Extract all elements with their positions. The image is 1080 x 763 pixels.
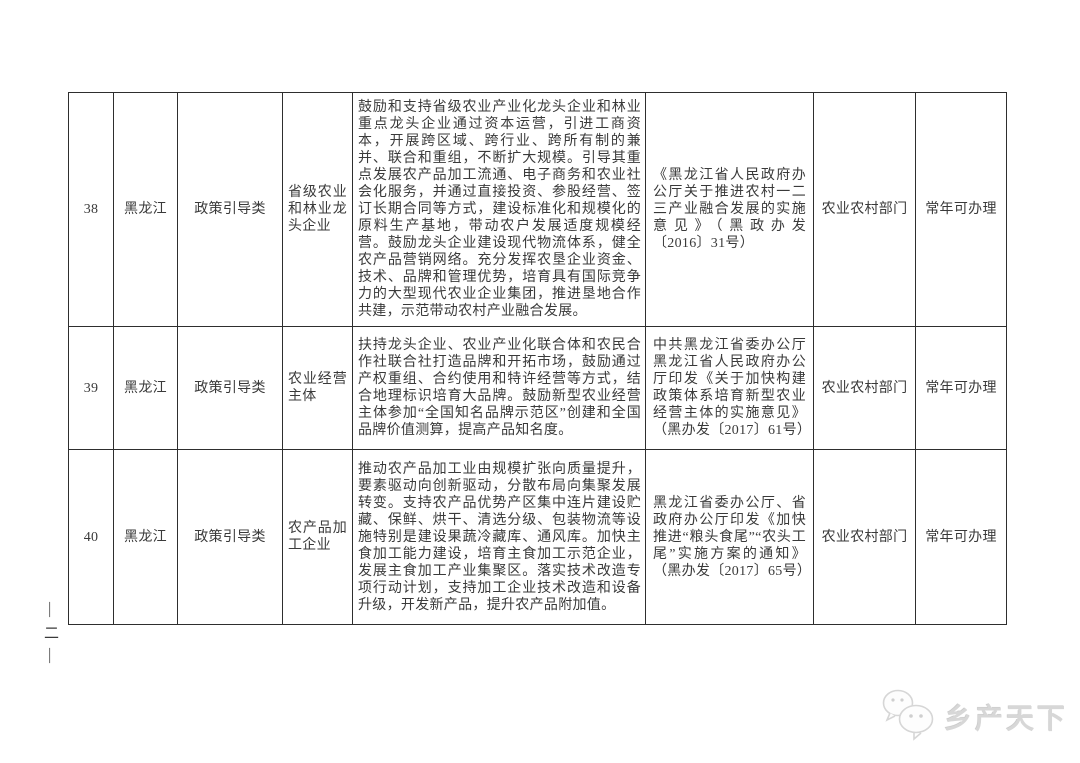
cell-category: 政策引导类: [178, 450, 283, 625]
cell-description: 扶持龙头企业、农业产业化联合体和农民合作社联合社打造品牌和开拓市场，鼓励通过产权…: [353, 327, 646, 450]
cell-target: 农产品加工企业: [283, 450, 353, 625]
cell-province: 黑龙江: [114, 327, 178, 450]
cell-no: 40: [69, 450, 114, 625]
cell-department: 农业农村部门: [814, 327, 916, 450]
watermark-text: 乡产天下: [944, 697, 1068, 737]
chat-bubbles-icon: [876, 686, 938, 747]
cell-document: 黑龙江省委办公厅、省政府办公厅印发《加快推进“粮头食尾”“农头工尾”实施方案的通…: [646, 450, 814, 625]
cell-document: 中共黑龙江省委办公厅黑龙江省人民政府办公厅印发《关于加快构建政策体系培育新型农业…: [646, 327, 814, 450]
page-number: —二—: [40, 602, 61, 671]
cell-province: 黑龙江: [114, 450, 178, 625]
table-row: 39 黑龙江 政策引导类 农业经营主体 扶持龙头企业、农业产业化联合体和农民合作…: [69, 327, 1007, 450]
cell-category: 政策引导类: [178, 93, 283, 327]
table-row: 40 黑龙江 政策引导类 农产品加工企业 推动农产品加工业由规模扩张向质量提升，…: [69, 450, 1007, 625]
cell-document: 《黑龙江省人民政府办公厅关于推进农村一二三产业融合发展的实施意见》（黑政办发〔2…: [646, 93, 814, 327]
cell-availability: 常年可办理: [916, 327, 1007, 450]
table-row: 38 黑龙江 政策引导类 省级农业和林业龙头企业 鼓励和支持省级农业产业化龙头企…: [69, 93, 1007, 327]
policy-table: 38 黑龙江 政策引导类 省级农业和林业龙头企业 鼓励和支持省级农业产业化龙头企…: [68, 92, 1007, 625]
cell-province: 黑龙江: [114, 93, 178, 327]
cell-description: 推动农产品加工业由规模扩张向质量提升，要素驱动向创新驱动，分散布局向集聚发展转变…: [353, 450, 646, 625]
cell-no: 38: [69, 93, 114, 327]
cell-description: 鼓励和支持省级农业产业化龙头企业和林业重点龙头企业通过资本运营，引进工商资本，开…: [353, 93, 646, 327]
cell-category: 政策引导类: [178, 327, 283, 450]
cell-target: 农业经营主体: [283, 327, 353, 450]
watermark: 乡产天下: [876, 686, 1068, 747]
cell-department: 农业农村部门: [814, 93, 916, 327]
cell-availability: 常年可办理: [916, 450, 1007, 625]
cell-department: 农业农村部门: [814, 450, 916, 625]
cell-no: 39: [69, 327, 114, 450]
document-page: 38 黑龙江 政策引导类 省级农业和林业龙头企业 鼓励和支持省级农业产业化龙头企…: [0, 0, 1080, 763]
cell-target: 省级农业和林业龙头企业: [283, 93, 353, 327]
cell-availability: 常年可办理: [916, 93, 1007, 327]
